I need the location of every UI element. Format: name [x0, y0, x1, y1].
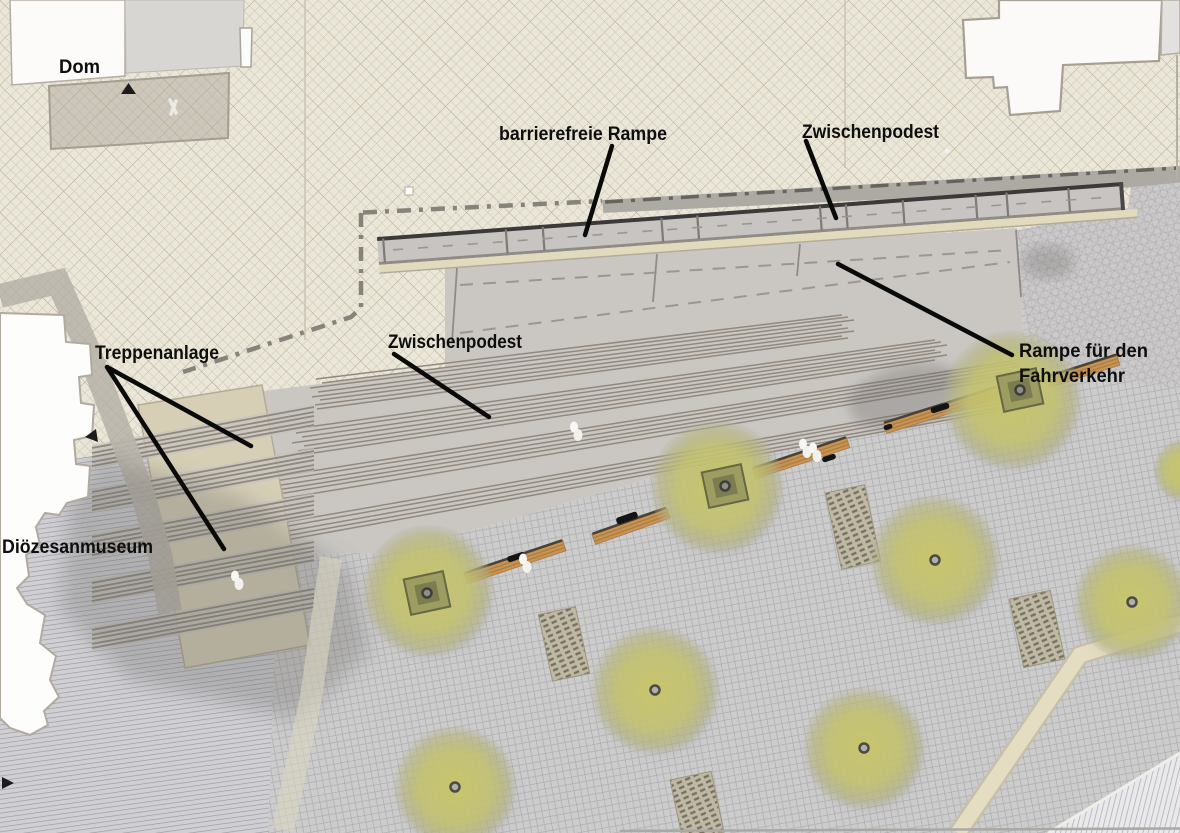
svg-text:Diözesanmuseum: Diözesanmuseum — [2, 537, 153, 558]
svg-text:Fahrverkehr: Fahrverkehr — [1019, 366, 1126, 387]
svg-text:Zwischenpodest: Zwischenpodest — [802, 122, 940, 143]
svg-text:Rampe für den: Rampe für den — [1019, 341, 1148, 362]
svg-text:Dom: Dom — [59, 57, 100, 78]
svg-text:Treppenanlage: Treppenanlage — [95, 343, 219, 364]
svg-text:barrierefreie Rampe: barrierefreie Rampe — [499, 124, 667, 145]
svg-text:Zwischenpodest: Zwischenpodest — [388, 332, 523, 353]
